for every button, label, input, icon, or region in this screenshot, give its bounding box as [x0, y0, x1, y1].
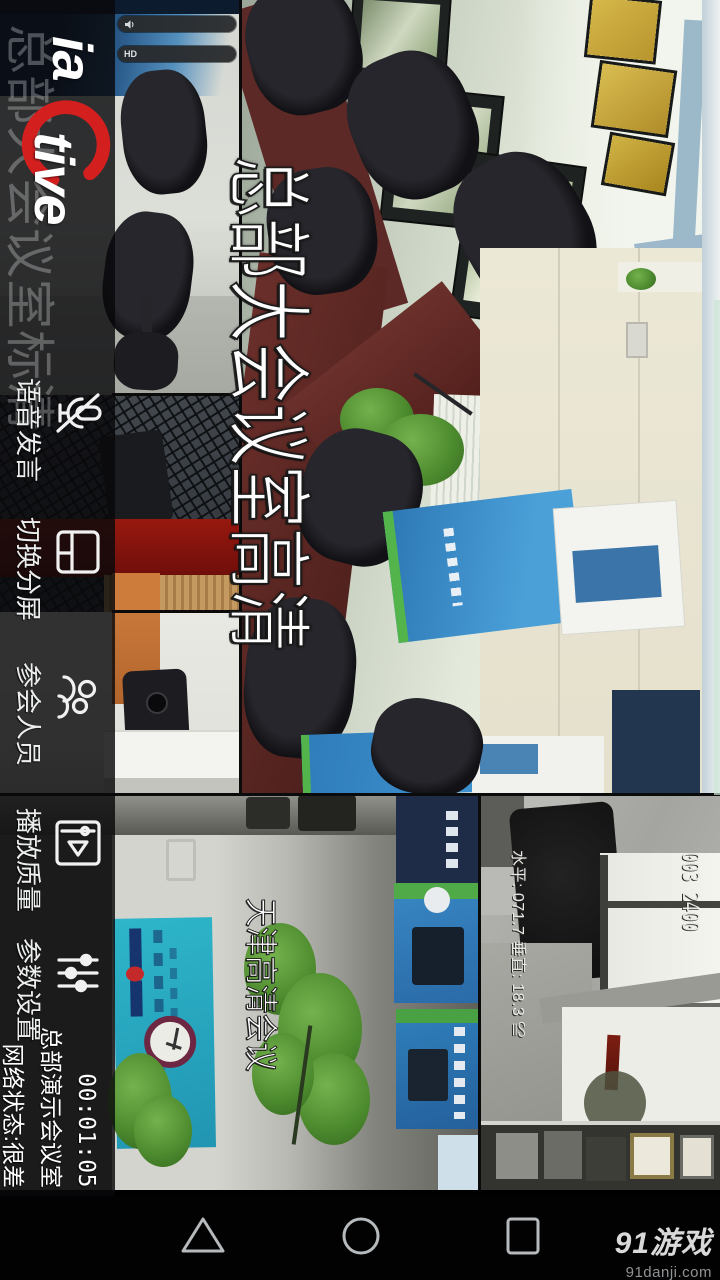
- session-status: 00:01:05 总部演示会议室 网络状态:很差: [0, 1027, 99, 1188]
- split-screen-button[interactable]: 切换分屏: [11, 482, 107, 622]
- mute-button[interactable]: 语音发言: [11, 343, 107, 483]
- phone-screen: HD 总部大会议室高清 天津高清会议 003 2400 水平: 071.7 垂直…: [0, 0, 720, 1280]
- watermark-site: 91danji.com: [615, 1264, 712, 1280]
- camera-osd-preset: 003 2400: [677, 852, 702, 931]
- participants-button[interactable]: 参会人员: [11, 627, 107, 767]
- play-quality-icon: [49, 814, 107, 872]
- recents-square-icon[interactable]: [503, 1215, 543, 1257]
- logo-text-right: tive: [22, 132, 87, 225]
- room-name: 总部演示会议室: [36, 1027, 70, 1188]
- settings-button[interactable]: 参数设置: [11, 903, 107, 1043]
- conference-app: HD 总部大会议室高清 天津高清会议 003 2400 水平: 071.7 垂直…: [0, 0, 720, 1196]
- network-status: 网络状态:很差: [0, 1027, 32, 1188]
- toolbar-button-label: 切换分屏: [11, 517, 48, 621]
- back-triangle-icon[interactable]: [180, 1214, 226, 1256]
- call-timer: 00:01:05: [73, 1027, 99, 1188]
- iactive-logo: ia tive: [5, 36, 115, 276]
- play-quality-button[interactable]: 播放质量: [11, 773, 107, 913]
- toolbar: 总部大会议室标清 ia tive 语音发言 切换分屏: [0, 0, 115, 1196]
- watermark: 91游戏 91danji.com: [615, 1218, 712, 1280]
- camera-osd-pan-tilt: 水平: 071.7 垂直: 18.3 ≌: [508, 850, 532, 1038]
- home-circle-icon[interactable]: [340, 1215, 382, 1257]
- settings-sliders-icon: [49, 944, 107, 1002]
- toolbar-button-label: 播放质量: [11, 808, 48, 912]
- split-screen-icon: [49, 523, 107, 581]
- watermark-brand: 91游戏: [615, 1218, 712, 1262]
- android-navbar: 91游戏 91danji.com: [0, 1196, 720, 1280]
- participants-icon: [49, 668, 107, 726]
- mic-muted-icon: [49, 384, 107, 442]
- tianjin-video-label: 天津高清会议: [239, 898, 288, 1071]
- toolbar-button-label: 参会人员: [11, 662, 48, 766]
- logo-text-left: ia: [40, 36, 105, 81]
- landscape-stage: 总部大会议室高清 天津高清会议 003 2400 水平: 071.7 垂直: 1…: [0, 0, 720, 1196]
- main-video-label: 总部大会议室高清: [213, 156, 338, 651]
- toolbar-button-label: 语音发言: [11, 378, 48, 482]
